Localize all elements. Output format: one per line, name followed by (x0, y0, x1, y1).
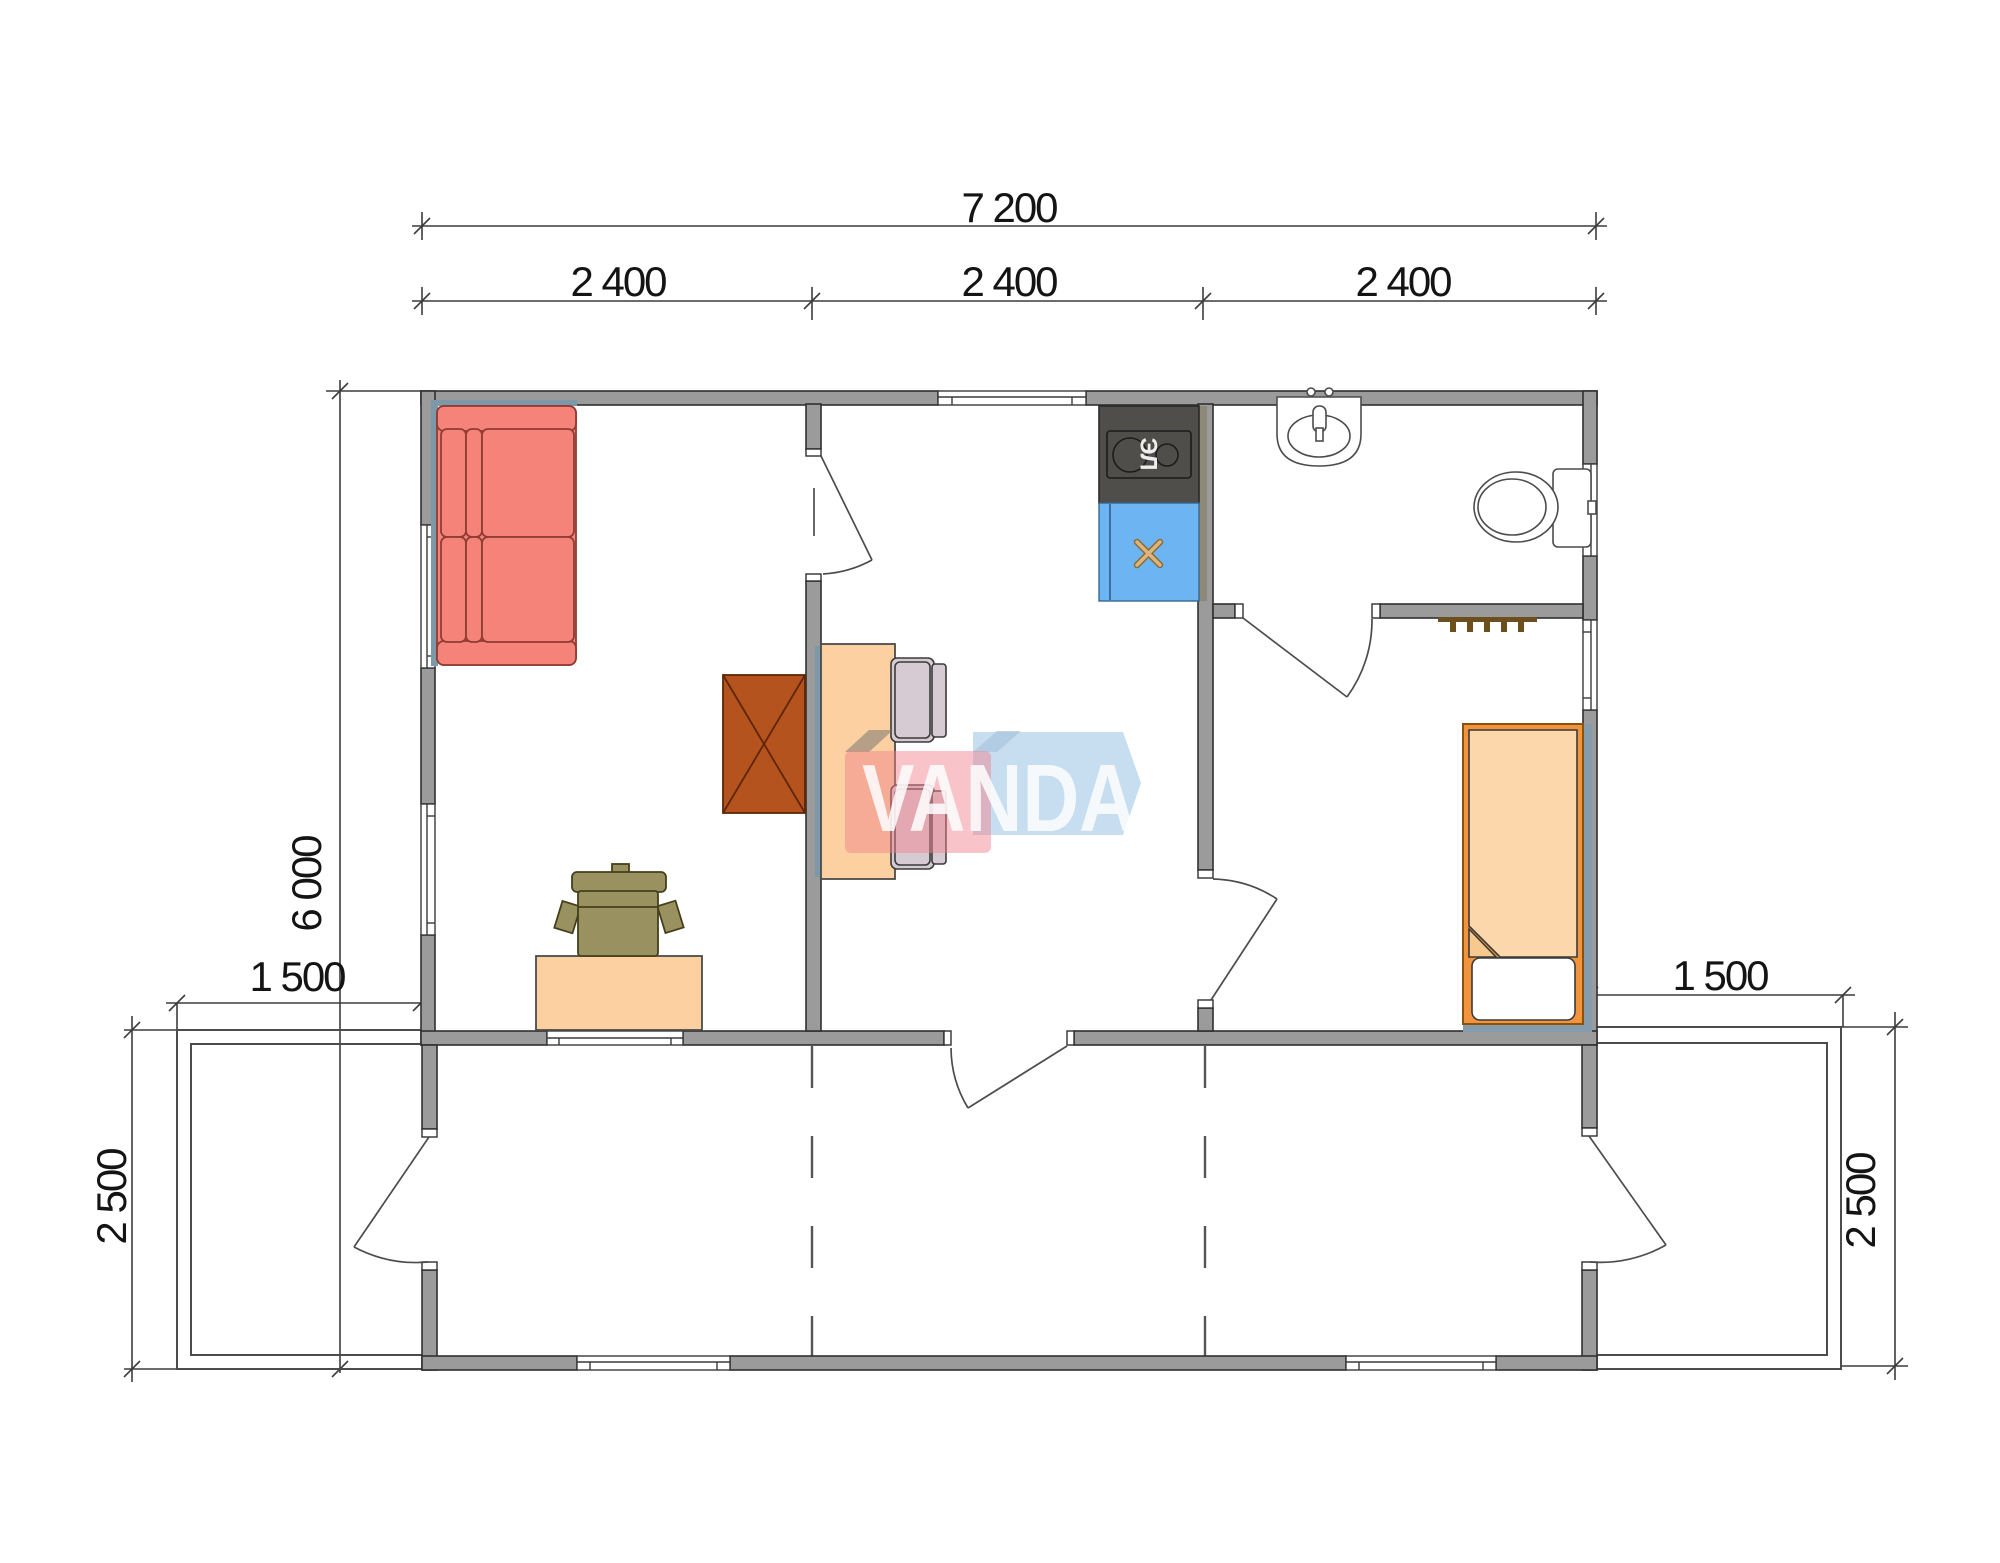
svg-text:1 500: 1 500 (249, 953, 345, 1000)
svg-text:1 500: 1 500 (1672, 952, 1768, 999)
svg-text:2 500: 2 500 (88, 1149, 135, 1245)
svg-text:2 400: 2 400 (570, 258, 666, 305)
svg-text:2 400: 2 400 (1355, 258, 1451, 305)
svg-text:ЭЛ: ЭЛ (1135, 438, 1162, 471)
svg-text:VANDA: VANDA (862, 745, 1136, 852)
svg-text:2 400: 2 400 (961, 258, 1057, 305)
svg-text:7 200: 7 200 (961, 184, 1057, 231)
svg-text:6 000: 6 000 (283, 836, 330, 932)
svg-text:2 500: 2 500 (1837, 1153, 1884, 1249)
